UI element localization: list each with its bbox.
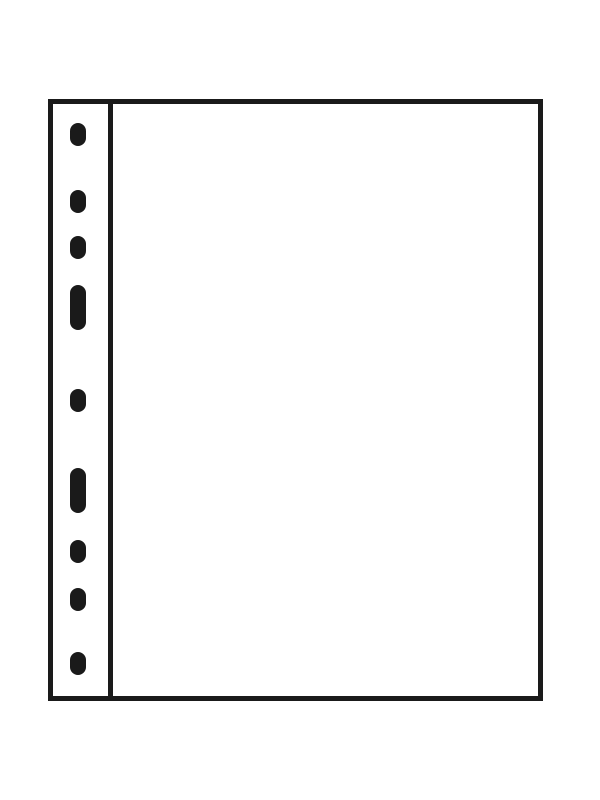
punch-hole bbox=[70, 389, 86, 412]
punch-hole-strip bbox=[53, 104, 108, 696]
punch-hole bbox=[70, 190, 86, 213]
punch-hole bbox=[70, 652, 86, 675]
punch-hole bbox=[70, 540, 86, 563]
product-illustration-canvas bbox=[0, 0, 600, 800]
punch-slot bbox=[70, 468, 86, 513]
binding-strip-divider bbox=[108, 104, 113, 696]
punch-hole bbox=[70, 123, 86, 146]
album-page-outline bbox=[48, 99, 543, 701]
punch-hole bbox=[70, 236, 86, 259]
punch-hole bbox=[70, 588, 86, 611]
punch-slot bbox=[70, 285, 86, 330]
